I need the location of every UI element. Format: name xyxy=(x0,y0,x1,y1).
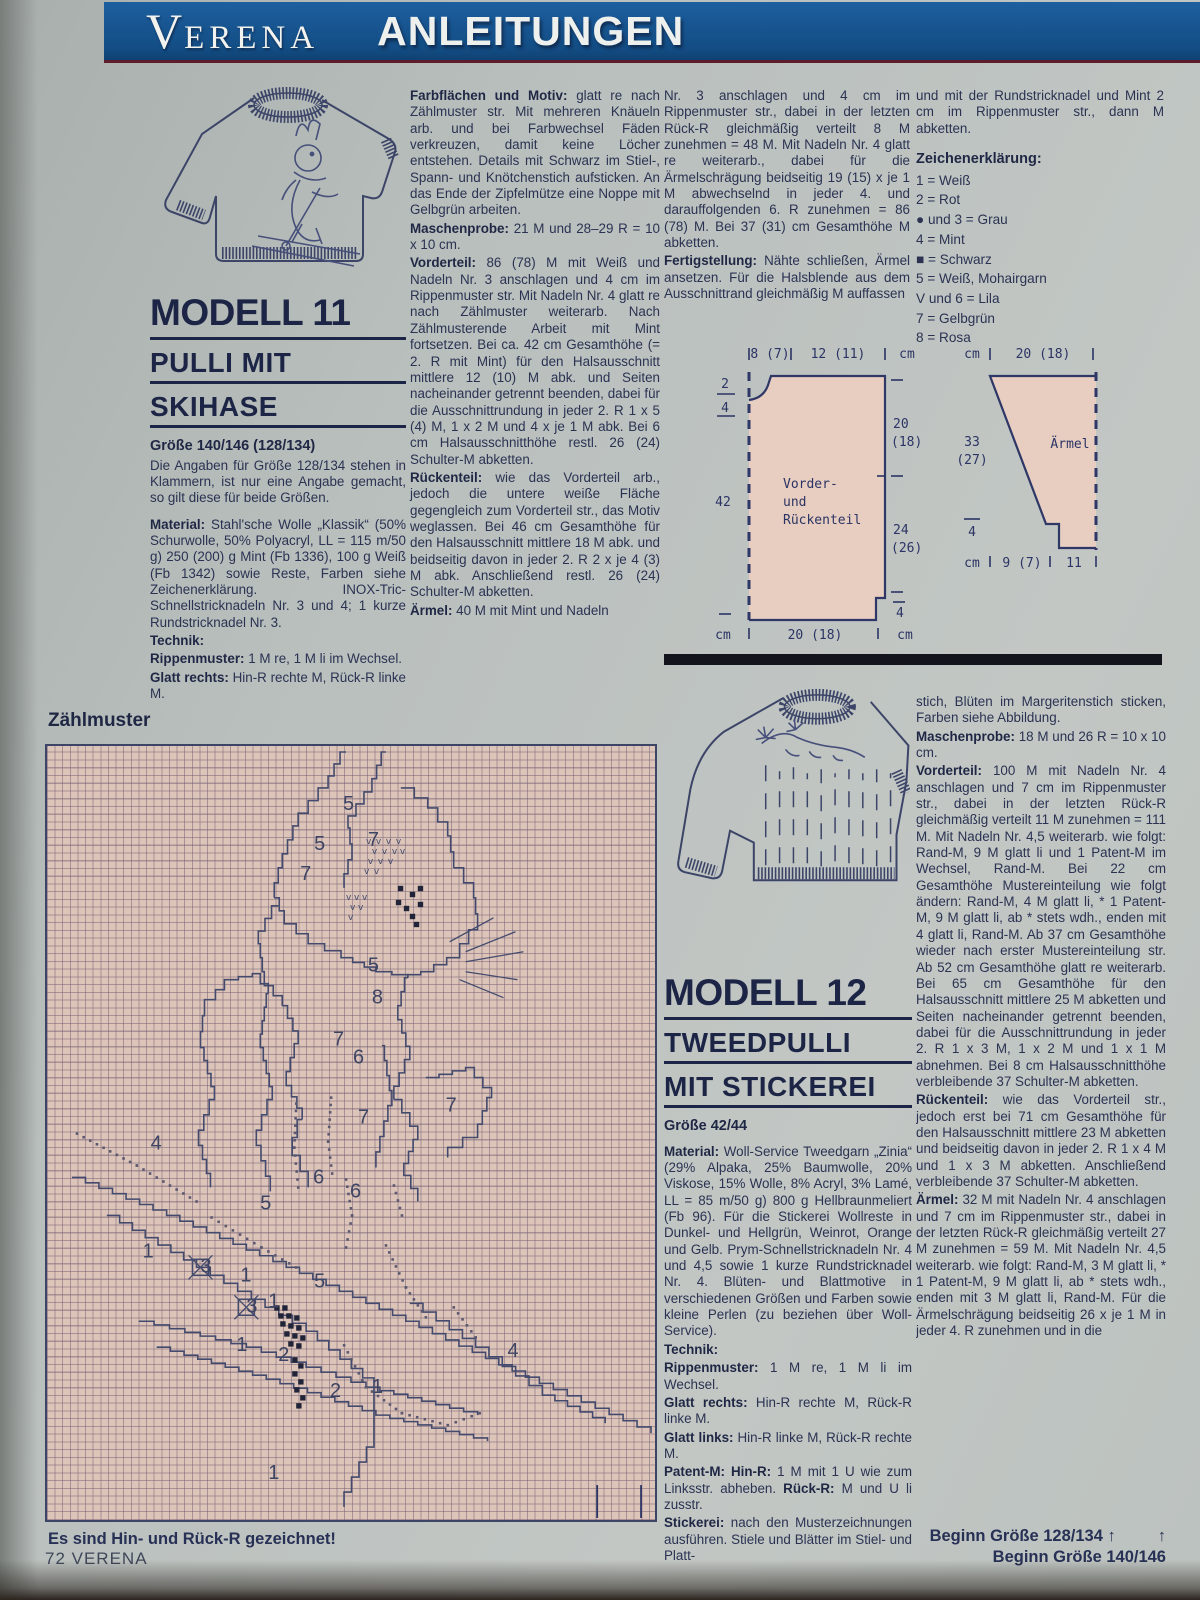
stitch-dot xyxy=(417,1304,420,1307)
chart-color-number: 3 xyxy=(246,1295,257,1317)
page-gutter-shadow xyxy=(0,0,40,1600)
stitch-dot xyxy=(232,1229,235,1232)
stitch-dot xyxy=(149,1172,152,1175)
stitch-dot xyxy=(405,1286,408,1289)
piece-name: und xyxy=(783,495,806,510)
measure-label: 24 xyxy=(893,523,909,538)
measure-label: 42 xyxy=(715,495,731,510)
stitch-dot xyxy=(466,1324,469,1327)
black-stitch-square xyxy=(410,892,415,897)
aermel-paragraph: Ärmel: 40 M mit Mint und Nadeln xyxy=(410,603,660,619)
stitch-dot xyxy=(357,1372,360,1375)
motif-contour xyxy=(274,898,408,978)
stitch-dot xyxy=(294,1132,297,1135)
up-arrow-icon: ↑ xyxy=(1108,1527,1116,1545)
vorderteil-paragraph: Vorderteil: 86 (78) M mit Weiß und Nadel… xyxy=(410,255,660,467)
black-stitch-square xyxy=(300,1395,305,1400)
stitch-dot xyxy=(102,1146,105,1149)
left-cuff-rib xyxy=(686,862,716,871)
measure-label: 33 xyxy=(964,435,980,450)
stitch-dot xyxy=(470,1415,473,1418)
v-stitch-symbol: v xyxy=(388,857,394,867)
stitch-dot xyxy=(82,1136,85,1139)
modell-11-subtitle-2: SKIHASE xyxy=(150,391,406,428)
chart-color-number: 7 xyxy=(358,1106,369,1128)
farbflaechen-paragraph: Farbflächen und Motiv: glatt re nach Zäh… xyxy=(410,88,660,219)
stitch-dot xyxy=(431,1420,434,1423)
stitch-dot xyxy=(169,1184,172,1187)
black-stitch-square xyxy=(292,1357,297,1362)
stitch-dot xyxy=(288,1262,291,1265)
stitch-dot xyxy=(295,1162,298,1165)
chart-color-number: 4 xyxy=(507,1340,518,1362)
v-stitch-symbol: v xyxy=(378,857,384,867)
stitch-dot xyxy=(294,1124,297,1127)
motif-contour xyxy=(206,974,268,1000)
measure-label: 12 (11) xyxy=(811,347,866,362)
stitch-dot xyxy=(329,1156,332,1159)
stitch-dot xyxy=(461,1318,464,1321)
stitch-dot xyxy=(295,1102,298,1105)
black-stitch-square xyxy=(410,914,415,919)
photo-shadow xyxy=(0,1560,1200,1600)
stitch-dot xyxy=(385,1244,388,1247)
motif-contour xyxy=(292,1120,308,1188)
motif-contour xyxy=(282,1006,302,1120)
black-stitch-square xyxy=(300,1335,305,1340)
stitch-dot xyxy=(346,1185,349,1188)
motif-contour xyxy=(401,788,454,868)
piece-name: Vorder- xyxy=(783,477,838,492)
piece-name: Rückenteil xyxy=(783,513,861,528)
legend-item: 1 = Weiß xyxy=(916,171,1164,191)
stitch-dot xyxy=(361,1379,364,1382)
chart-color-number: 5 xyxy=(260,1192,271,1214)
legend-item: 7 = Gelbgrün xyxy=(916,309,1164,329)
stickerei-continuation: stich, Blüten im Margeritenstich sticken… xyxy=(916,694,1166,727)
legend-item: 5 = Weiß, Mohairgarn xyxy=(916,269,1164,289)
chart-caption-left: Es sind Hin- und Rück-R gezeichnet! xyxy=(48,1530,336,1549)
stitch-dot xyxy=(328,1148,331,1151)
stitch-dot xyxy=(329,1111,332,1114)
whisker-line xyxy=(466,952,524,962)
black-stitch-square xyxy=(418,886,423,891)
modell-12-subtitle-2: MIT STICKEREI xyxy=(664,1071,912,1108)
stitch-dot xyxy=(89,1139,92,1142)
modell-11-sweater-illustration xyxy=(150,84,400,284)
chart-color-number: 6 xyxy=(353,1047,364,1069)
stitch-dot xyxy=(409,1292,412,1295)
stitch-dot xyxy=(76,1132,79,1135)
measure-label: 4 xyxy=(721,401,729,416)
stitch-dot xyxy=(116,1154,119,1157)
black-stitch-square xyxy=(418,902,423,907)
modell-12-continuation-column: stich, Blüten im Margeritenstich sticken… xyxy=(916,694,1166,1562)
stitch-dot xyxy=(425,1316,428,1319)
section-title: ANLEITUNGEN xyxy=(377,8,684,55)
measure-label: (26) xyxy=(891,541,922,556)
stitch-dot xyxy=(395,1192,398,1195)
maschenprobe-paragraph: Maschenprobe: 21 M und 28–29 R = 10 x 10… xyxy=(410,221,660,254)
up-arrow-icon: ↑ xyxy=(1158,1527,1166,1545)
modell-11-instructions-column: Farbflächen und Motiv: glatt re nach Zäh… xyxy=(410,88,660,621)
piece-name: Ärmel xyxy=(1050,436,1089,452)
black-stitch-square xyxy=(298,1363,303,1368)
maschenprobe-paragraph: Maschenprobe: 18 M und 26 R = 10 x 10 cm… xyxy=(916,729,1166,762)
fertigstellung-continuation: und mit der Rundstricknadel und Mint 2 c… xyxy=(916,88,1164,137)
chart-color-number: 7 xyxy=(300,863,311,885)
chart-color-number: 6 xyxy=(313,1166,324,1188)
stitch-dot xyxy=(399,1207,402,1210)
measure-unit: cm xyxy=(897,628,913,643)
stitch-dot xyxy=(330,1096,333,1099)
stitch-dot xyxy=(462,1418,465,1421)
stitch-dot xyxy=(348,1230,351,1233)
fertigstellung-paragraph: Fertigstellung: Nähte schließen, Ärmel a… xyxy=(664,253,910,302)
black-stitch-square xyxy=(280,1321,285,1326)
glatt-links-paragraph: Glatt links: Hin-R linke M, Rück-R recht… xyxy=(664,1430,912,1463)
stitch-dot xyxy=(347,1351,350,1354)
stitch-dot xyxy=(395,1265,398,1268)
black-stitch-square xyxy=(296,1403,301,1408)
v-stitch-symbol: v xyxy=(368,857,374,867)
stitch-dot xyxy=(136,1164,139,1167)
stitch-dot xyxy=(293,1146,296,1149)
stitch-dot xyxy=(421,1310,424,1313)
whisker-line xyxy=(466,932,516,952)
stitch-dot xyxy=(389,1403,392,1406)
stitch-dot xyxy=(350,1358,353,1361)
legend-item: V und 6 = Lila xyxy=(916,289,1164,309)
chart-color-number: 2 xyxy=(278,1344,289,1366)
measure-label: 20 (18) xyxy=(1016,347,1071,362)
measure-unit: cm xyxy=(964,347,980,362)
chart-color-number: 1 xyxy=(236,1334,247,1356)
stitch-dot xyxy=(346,1238,349,1241)
v-stitch-symbol: v xyxy=(400,847,406,857)
measure-label: 4 xyxy=(896,606,904,621)
stitch-dot xyxy=(328,1126,331,1129)
chart-color-number: 1 xyxy=(372,1376,383,1398)
v-stitch-symbol: v xyxy=(374,867,380,877)
chart-color-number: 5 xyxy=(314,833,325,855)
chart-heading: Zählmuster xyxy=(48,710,150,732)
motif-contour xyxy=(72,1177,651,1433)
stitch-dot xyxy=(329,1104,332,1107)
motif-contour xyxy=(394,1100,418,1202)
schematic-front-back: 8 (7) 12 (11) cm 2 4 42 cm 20 (18) 24 (2… xyxy=(695,336,935,651)
modell-11-subtitle-1: PULLI MIT xyxy=(150,347,406,384)
stitch-dot xyxy=(274,1254,277,1257)
legend-heading: Zeichenerklärung: xyxy=(916,151,1164,169)
measure-label: 9 (7) xyxy=(1002,556,1041,571)
measure-label: 11 xyxy=(1066,556,1082,571)
stitch-dot xyxy=(424,1418,427,1421)
modell-12-column: MODELL 12 TWEEDPULLI MIT STICKEREI Größe… xyxy=(664,972,912,1566)
measure-label: 8 (7) xyxy=(750,347,789,362)
stitch-dot xyxy=(349,1222,352,1225)
schematic-sleeve: cm 20 (18) 33 (27) 4 cm 9 (7) 11 Ärmel xyxy=(928,336,1168,581)
stitch-dot xyxy=(408,1414,411,1417)
chart-color-number: 4 xyxy=(151,1132,162,1154)
v-stitch-symbol: v xyxy=(354,893,360,903)
chart-color-number: 1 xyxy=(240,1264,251,1286)
stitch-dot xyxy=(109,1150,112,1153)
stitch-dot xyxy=(454,1421,457,1424)
stitch-dot xyxy=(182,1192,185,1195)
v-stitch-symbol: v xyxy=(364,867,370,877)
stitch-dot xyxy=(267,1250,270,1253)
size-heading: Größe 42/44 xyxy=(664,1118,912,1136)
patent-paragraph: Patent-M: Hin-R: 1 M mit 1 U wie zum Lin… xyxy=(664,1464,912,1513)
stitch-dot xyxy=(96,1143,99,1146)
black-stitch-square xyxy=(298,1379,303,1384)
legend-item: ■ = Schwarz xyxy=(916,250,1164,270)
stitch-dot xyxy=(294,1154,297,1157)
aermel-continuation: Nr. 3 anschlagen und 4 cm im Rippenmuste… xyxy=(664,88,910,251)
black-stitch-square xyxy=(286,1313,291,1318)
rippenmuster-paragraph: Rippenmuster: 1 M re, 1 M li im Wechsel. xyxy=(150,651,406,667)
motif-contour xyxy=(258,906,282,1006)
stitch-dot xyxy=(327,1133,330,1136)
left-cuff-rib xyxy=(178,205,204,215)
chart-color-number: 7 xyxy=(368,829,379,851)
page-banner: VERENA ANLEITUNGEN xyxy=(104,2,1200,63)
stitch-dot xyxy=(217,1220,220,1223)
stitch-dot xyxy=(416,1416,419,1419)
stitch-dot xyxy=(295,1266,298,1269)
chart-color-number: 1 xyxy=(268,1290,279,1312)
flower-embroidery-motif xyxy=(756,720,865,761)
measure-label: 4 xyxy=(968,525,976,540)
stitch-dot xyxy=(239,1233,242,1236)
aermel-paragraph: Ärmel: 32 M mit Nadeln Nr. 4 anschlagen … xyxy=(916,1192,1166,1339)
black-stitch-square xyxy=(396,900,401,905)
chart-color-number: 1 xyxy=(143,1240,154,1262)
stitch-dot xyxy=(129,1161,132,1164)
ski-rabbit-motif xyxy=(252,120,360,266)
stitch-dot xyxy=(293,1139,296,1142)
stitch-dot xyxy=(295,1170,298,1173)
v-stitch-symbol: v xyxy=(346,893,352,903)
measure-label: 20 xyxy=(893,417,909,432)
v-stitch-symbol: v xyxy=(350,903,356,913)
v-stitch-symbol: v xyxy=(358,903,364,913)
black-stitch-square xyxy=(294,1315,299,1320)
stitch-dot xyxy=(142,1168,145,1171)
technik-heading: Technik: xyxy=(664,1342,912,1358)
stitch-dot xyxy=(401,1279,404,1282)
measure-unit: cm xyxy=(899,347,915,362)
black-stitch-square xyxy=(284,1331,289,1336)
stitch-dot xyxy=(452,1306,455,1309)
glatt-rechts-paragraph: Glatt rechts: Hin-R rechte M, Rück-R lin… xyxy=(664,1395,912,1428)
stitch-dot xyxy=(401,1214,404,1217)
measure-unit: cm xyxy=(964,556,980,571)
stitch-dot xyxy=(260,1246,263,1249)
modell-12-title: MODELL 12 xyxy=(664,972,912,1020)
stitch-dot xyxy=(281,1258,284,1261)
stitch-dot xyxy=(457,1312,460,1315)
v-stitch-symbol: v xyxy=(392,847,398,857)
stitch-dot xyxy=(195,1200,198,1203)
measure-label: 20 (18) xyxy=(788,628,843,643)
black-stitch-square xyxy=(288,1323,293,1328)
motif-contour xyxy=(376,1046,392,1168)
stitch-dot xyxy=(401,1412,404,1415)
v-stitch-symbol: v xyxy=(348,913,354,923)
motif-contour xyxy=(426,1068,492,1158)
whisker-line xyxy=(460,980,504,998)
black-stitch-square xyxy=(294,1387,299,1392)
stitch-dot xyxy=(446,1424,449,1427)
stitch-dot xyxy=(189,1196,192,1199)
stitch-dot xyxy=(294,1117,297,1120)
whisker-line xyxy=(466,972,518,980)
stitch-dot xyxy=(365,1386,368,1389)
stitch-dot xyxy=(393,1184,396,1187)
intro-paragraph: Die Angaben für Größe 128/134 stehen in … xyxy=(150,458,406,507)
stitch-dot xyxy=(351,1214,354,1217)
stitch-dot xyxy=(470,1330,473,1333)
stitch-dot xyxy=(345,1246,348,1249)
stitch-dot xyxy=(395,1408,398,1411)
counting-chart: vvvvvvvvvvvvvvvvvvv557758764776651315131… xyxy=(45,744,657,1522)
stitch-dot xyxy=(397,1199,400,1202)
stitch-dot xyxy=(383,1399,386,1402)
black-stitch-square xyxy=(278,1313,283,1318)
stitch-dot xyxy=(297,1186,300,1189)
chart-color-number: 3 xyxy=(200,1255,211,1277)
black-stitch-square xyxy=(404,906,409,911)
stitch-dot xyxy=(331,1172,334,1175)
stitch-dot xyxy=(343,1344,346,1347)
chart-color-number: 7 xyxy=(446,1095,457,1117)
rippenmuster-paragraph: Rippenmuster: 1 M re, 1 M li im Wechsel. xyxy=(664,1360,912,1393)
legend-column: und mit der Rundstricknadel und Mint 2 c… xyxy=(916,88,1164,348)
whisker-line xyxy=(450,918,494,942)
modell-12-subtitle-1: TWEEDPULLI xyxy=(664,1027,912,1064)
stitch-dot xyxy=(398,1272,401,1275)
motif-contour xyxy=(256,994,272,1192)
vorderteil-paragraph: Vorderteil: 100 M mit Nadeln Nr. 4 ansch… xyxy=(916,763,1166,1090)
glatt-rechts-paragraph: Glatt rechts: Hin-R rechte M, Rück-R lin… xyxy=(150,670,406,703)
chart-color-number: 1 xyxy=(268,1462,279,1484)
stitch-dot xyxy=(210,1216,213,1219)
technik-heading: Technik: xyxy=(150,633,406,649)
stitch-dot xyxy=(225,1225,228,1228)
chart-color-number: 7 xyxy=(333,1029,344,1051)
measure-unit: cm xyxy=(715,628,731,643)
legend-item: 2 = Rot xyxy=(916,190,1164,210)
magazine-logo: VERENA xyxy=(146,2,319,60)
rueckenteil-paragraph: Rückenteil: wie das Vorderteil arb., jed… xyxy=(410,470,660,601)
legend-item: ● und 3 = Grau xyxy=(916,210,1164,230)
stitch-dot xyxy=(246,1238,249,1241)
chart-color-number: 2 xyxy=(330,1380,341,1402)
stitch-dot xyxy=(388,1251,391,1254)
modell-12-sweater-illustration xyxy=(666,686,910,904)
black-stitch-square xyxy=(296,1325,301,1330)
beginn-line-1: Beginn Größe 128/134 ↑↑ xyxy=(844,1526,1166,1547)
black-stitch-square xyxy=(296,1343,301,1348)
stitch-dot xyxy=(253,1242,256,1245)
chart-color-number: 5 xyxy=(368,955,379,977)
modell-11-title: MODELL 11 xyxy=(150,292,406,340)
stitch-dot xyxy=(478,1412,481,1415)
stitch-dot xyxy=(328,1118,331,1121)
black-stitch-square xyxy=(414,922,419,927)
black-stitch-square xyxy=(292,1371,297,1376)
chart-color-number: 5 xyxy=(314,1270,325,1292)
material-paragraph: Material: Stahl'sche Wolle „Klassik“ (50… xyxy=(150,517,406,631)
modell-11-column: MODELL 11 PULLI MIT SKIHASE Größe 140/14… xyxy=(150,292,406,705)
modell-11-continuation-column: Nr. 3 anschlagen und 4 cm im Rippenmuste… xyxy=(664,88,910,304)
black-stitch-square xyxy=(398,886,403,891)
measure-label: (18) xyxy=(891,435,922,450)
size-heading: Größe 140/146 (128/134) xyxy=(150,438,406,456)
stitch-dot xyxy=(391,1258,394,1261)
stitch-dot xyxy=(162,1180,165,1183)
stitch-dot xyxy=(295,1110,298,1113)
motif-contour xyxy=(394,978,410,1100)
stitch-dot xyxy=(413,1298,416,1301)
stitch-dot xyxy=(350,1207,353,1210)
stitch-dot xyxy=(345,1178,348,1181)
stitch-dot xyxy=(175,1188,178,1191)
material-paragraph: Material: Woll-Service Tweedgarn „Zinia“… xyxy=(664,1144,912,1340)
chart-color-number: 6 xyxy=(350,1180,361,1202)
stitch-dot xyxy=(296,1178,299,1181)
patent-stitch-columns xyxy=(766,765,891,866)
rueckenteil-paragraph: Rückenteil: wie das Vorderteil str., jed… xyxy=(916,1092,1166,1190)
v-stitch-symbol: v xyxy=(382,847,388,857)
motif-contour xyxy=(157,1347,488,1441)
v-stitch-symbol: v xyxy=(362,893,368,903)
v-stitch-symbol: v xyxy=(396,837,402,847)
black-stitch-square xyxy=(292,1333,297,1338)
stitch-dot xyxy=(330,1164,333,1167)
v-stitch-symbol: v xyxy=(386,837,392,847)
section-divider xyxy=(664,654,1162,665)
stitch-dot xyxy=(474,1336,477,1339)
chart-motif-overlay: vvvvvvvvvvvvvvvvvvv557758764776651315131… xyxy=(47,746,655,1520)
stitch-dot xyxy=(155,1176,158,1179)
black-stitch-square xyxy=(282,1305,287,1310)
magazine-page: VERENA ANLEITUNGEN MODELL 11 PULLI MIT S xyxy=(0,0,1200,1600)
legend-item: 4 = Mint xyxy=(916,230,1164,250)
stitch-dot xyxy=(327,1140,330,1143)
measure-label: (27) xyxy=(956,453,987,468)
stitch-dot xyxy=(354,1365,357,1368)
chart-color-number: 8 xyxy=(372,987,383,1009)
measure-label: 2 xyxy=(721,377,729,392)
motif-contour xyxy=(139,1321,478,1415)
stitch-dot xyxy=(122,1157,125,1160)
chart-color-number: 5 xyxy=(343,793,354,815)
motif-contour xyxy=(199,1000,215,1188)
stitch-dot xyxy=(439,1422,442,1425)
